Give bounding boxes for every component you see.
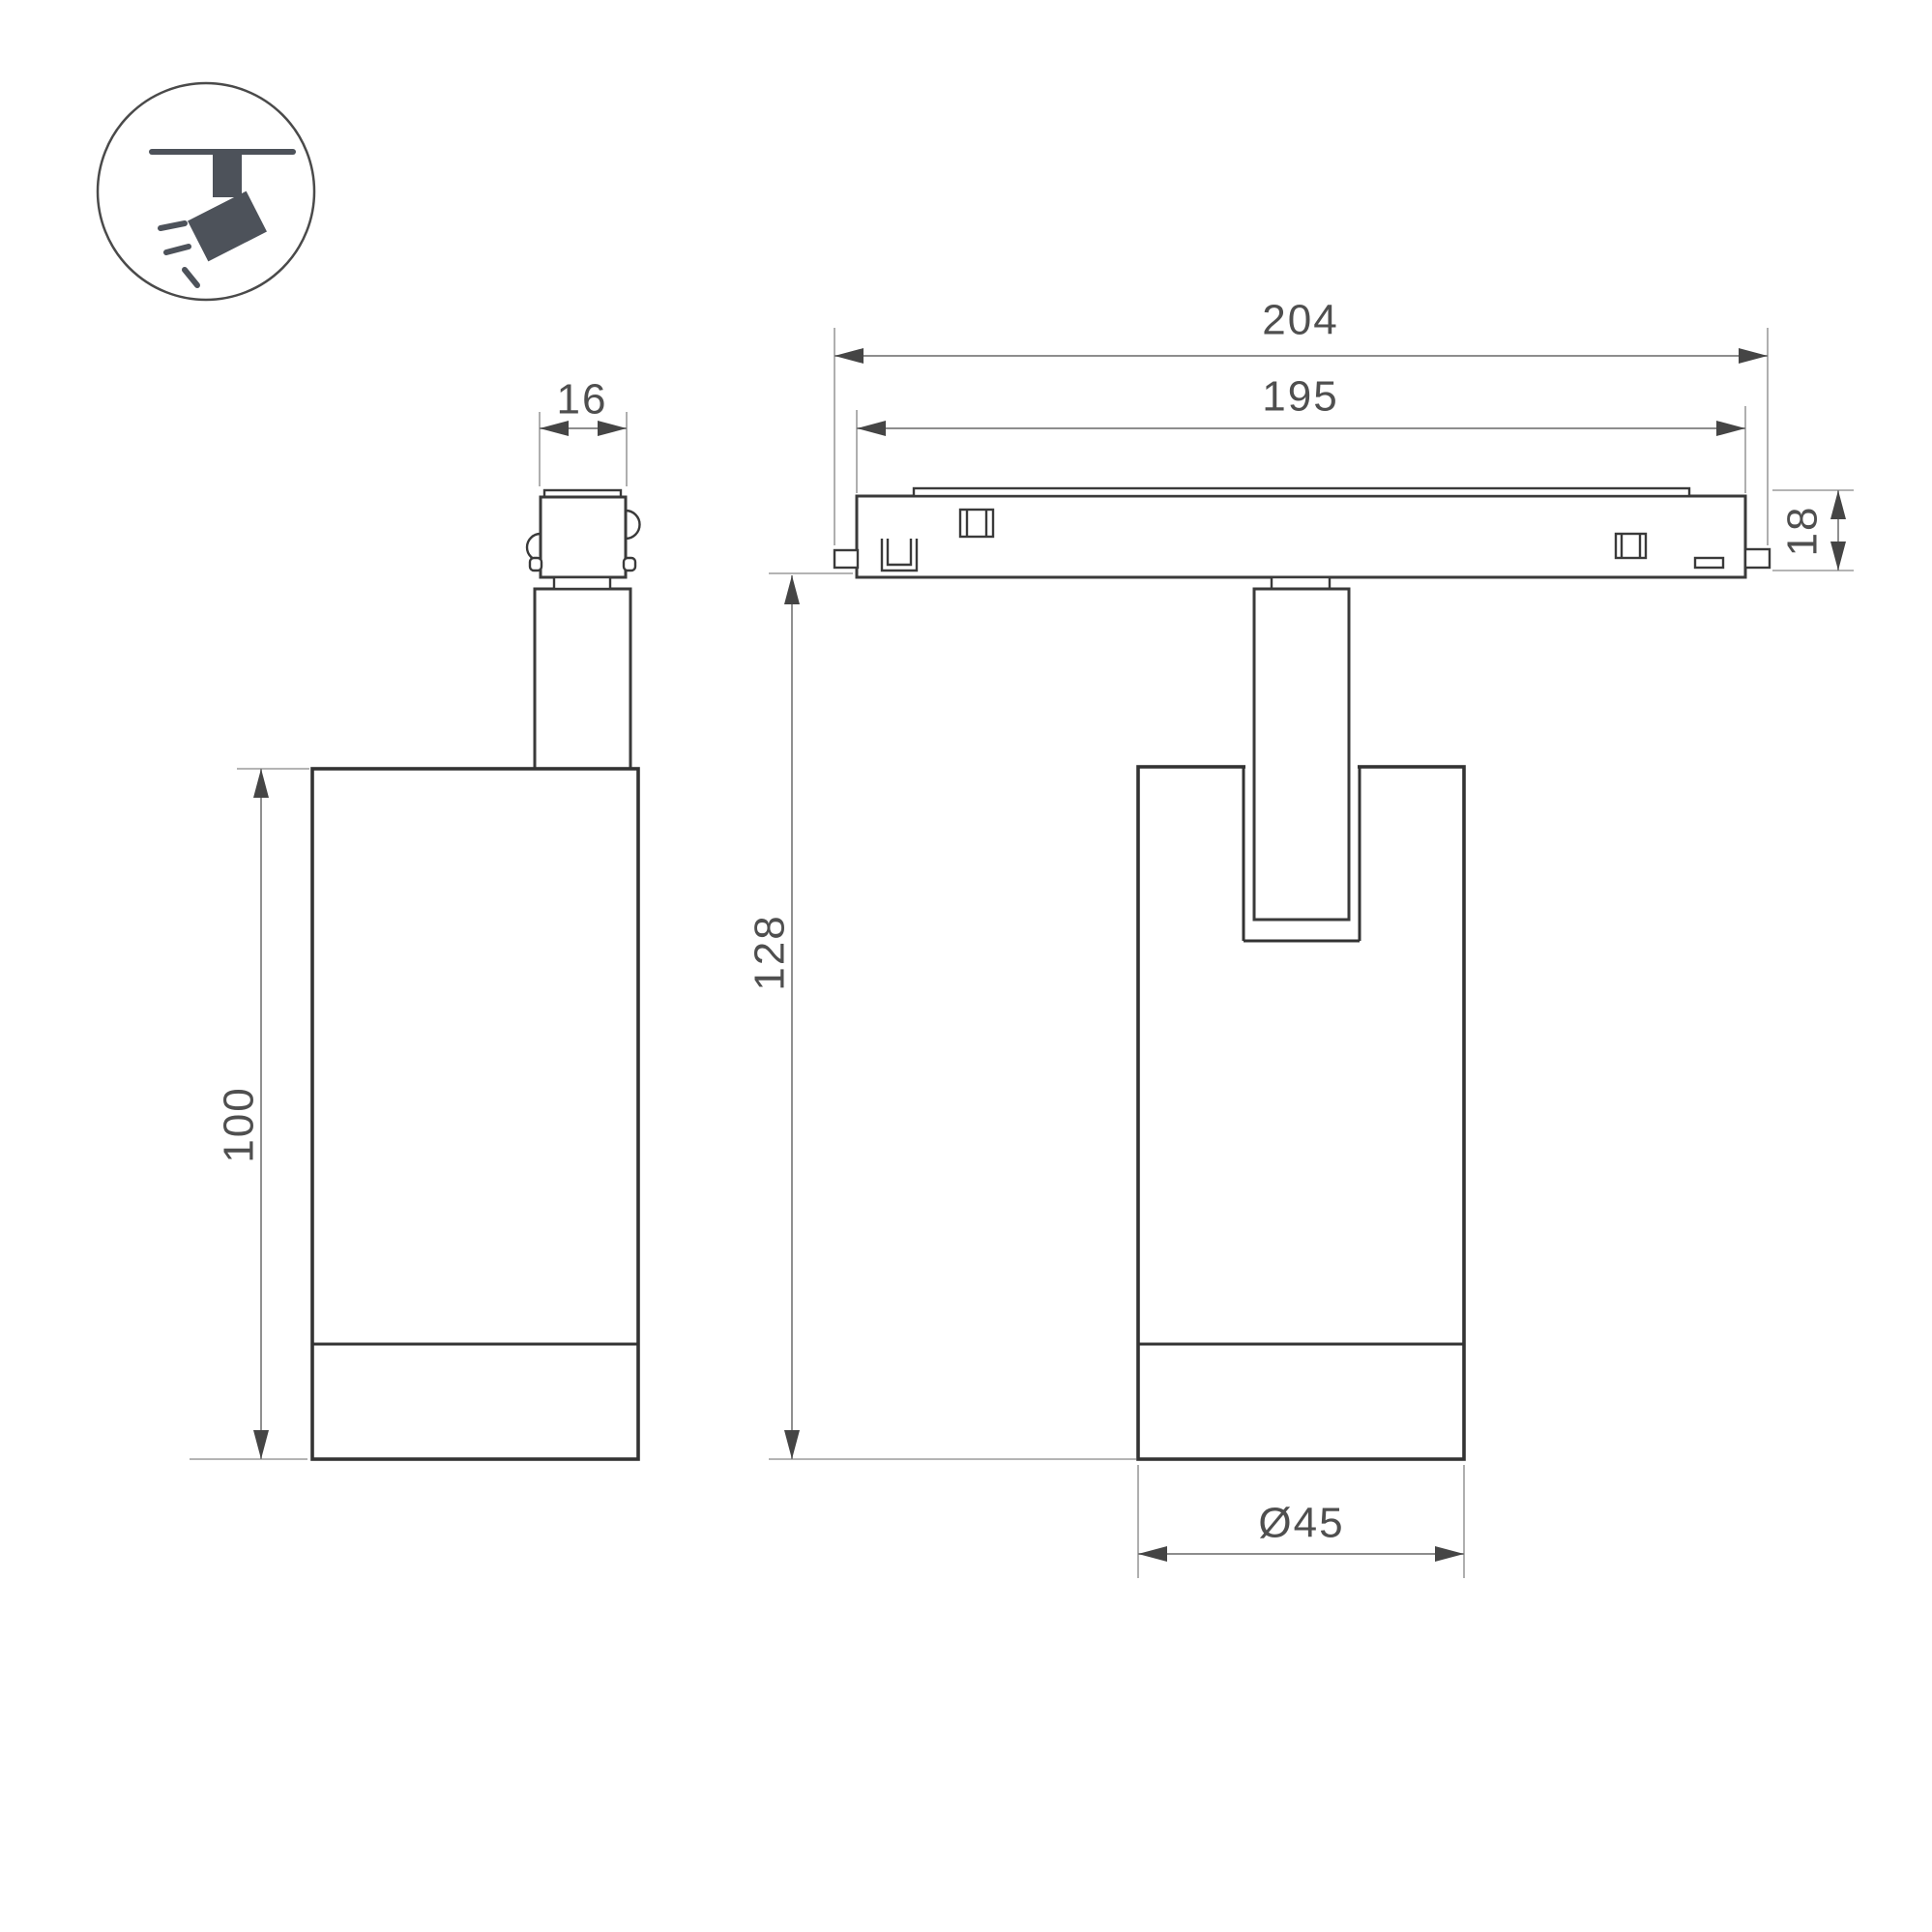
track-clip-left [960, 510, 993, 537]
dim-adapter-width: 16 [540, 376, 627, 487]
icon-circle [98, 83, 314, 300]
dim-overall-height: 128 [746, 573, 1137, 1459]
side-view: 16 100 [190, 376, 640, 1460]
track-right-connector [1745, 549, 1770, 568]
dim-track-inner: 195 [857, 373, 1745, 494]
side-body [312, 769, 638, 1459]
icon-track-stem [213, 152, 242, 197]
track-spotlight-icon [98, 83, 314, 300]
dim-track-overall-label: 204 [1262, 297, 1338, 344]
dim-track-inner-label: 195 [1262, 373, 1338, 421]
dim-body-diameter-label: Ø45 [1258, 1500, 1344, 1547]
track-spotlight-dimension-drawing: 16 100 [0, 0, 1932, 1932]
side-adapter-neck [554, 577, 610, 589]
dim-overall-height-label: 128 [746, 914, 794, 990]
dim-track-height: 18 [1772, 490, 1854, 571]
technical-drawing-page: 16 100 [0, 0, 1932, 1932]
dim-body-height: 100 [190, 769, 309, 1459]
side-adapter-right-spring [626, 511, 640, 539]
dim-track-height-label: 18 [1779, 506, 1827, 557]
side-adapter-left-tab [530, 558, 542, 571]
dim-body-height-label: 100 [216, 1086, 263, 1162]
side-adapter-box [541, 497, 626, 577]
track-clip-right [1616, 534, 1646, 558]
side-stem [535, 589, 630, 769]
front-adapter-neck [1272, 577, 1330, 589]
front-stem [1254, 589, 1349, 920]
track-top-plate [914, 488, 1689, 496]
dim-adapter-width-label: 16 [557, 376, 608, 424]
side-adapter-right-tab [624, 558, 635, 571]
front-view: 204 195 18 128 [746, 297, 1855, 1579]
track-left-connector [834, 550, 858, 568]
dim-body-diameter: Ø45 [1138, 1465, 1464, 1578]
track-slot-opening [1695, 558, 1723, 568]
